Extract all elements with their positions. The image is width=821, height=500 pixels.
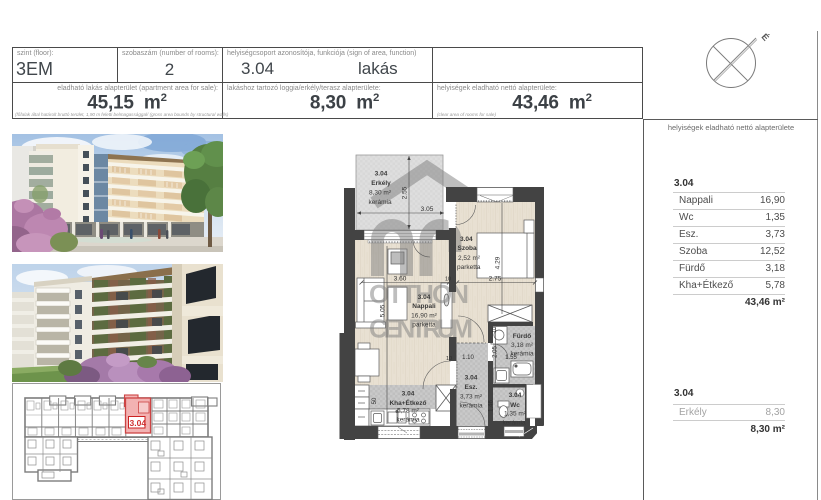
svg-text:Erkély: Erkély [371,180,391,187]
svg-text:3.60: 3.60 [394,276,407,283]
svg-text:parketta: parketta [457,264,481,271]
svg-text:3,73 m²: 3,73 m² [460,394,483,401]
svg-text:3.04: 3.04 [402,391,415,398]
svg-text:5.05: 5.05 [380,304,387,317]
svg-text:Nappali: Nappali [412,303,436,310]
svg-text:10: 10 [492,327,498,333]
svg-text:kerámia: kerámia [368,199,392,206]
svg-text:4.29: 4.29 [495,256,502,269]
svg-text:3.05: 3.05 [421,206,434,213]
svg-text:10: 10 [446,356,452,362]
svg-text:Fürdő: Fürdő [513,333,531,340]
svg-text:1.10: 1.10 [462,355,474,361]
svg-text:3,18 m²: 3,18 m² [511,342,534,349]
svg-text:3.04: 3.04 [418,294,431,301]
svg-text:kerámia: kerámia [510,351,534,358]
svg-text:kerámia: kerámia [502,420,526,427]
svg-text:3.04: 3.04 [460,236,473,243]
svg-text:1.46: 1.46 [489,400,495,412]
svg-text:50: 50 [372,397,378,404]
svg-text:2.05: 2.05 [493,346,499,358]
svg-text:8,30 m²: 8,30 m² [369,190,392,197]
svg-text:2,52 m²: 2,52 m² [458,255,481,262]
svg-text:Kha+Étkező: Kha+Étkező [389,398,426,407]
svg-text:5,78 m²: 5,78 m² [397,408,420,415]
svg-text:1,35 m²: 1,35 m² [504,411,527,418]
svg-text:2.55: 2.55 [402,186,409,199]
svg-text:kerámia: kerámia [396,417,420,424]
svg-text:Esz.: Esz. [464,384,477,391]
svg-text:3.04: 3.04 [130,418,147,428]
svg-text:3.04: 3.04 [509,392,522,399]
svg-text:2.75: 2.75 [489,276,502,283]
svg-text:3.04: 3.04 [375,171,388,178]
svg-text:Szoba: Szoba [458,245,478,252]
svg-text:10: 10 [445,277,451,283]
svg-text:parketta: parketta [412,322,436,329]
svg-text:3.04: 3.04 [465,375,478,382]
svg-text:É: É [760,32,771,43]
svg-text:kerámia: kerámia [459,403,483,410]
svg-text:Wc: Wc [510,402,520,409]
svg-text:16,90 m²: 16,90 m² [411,313,437,320]
